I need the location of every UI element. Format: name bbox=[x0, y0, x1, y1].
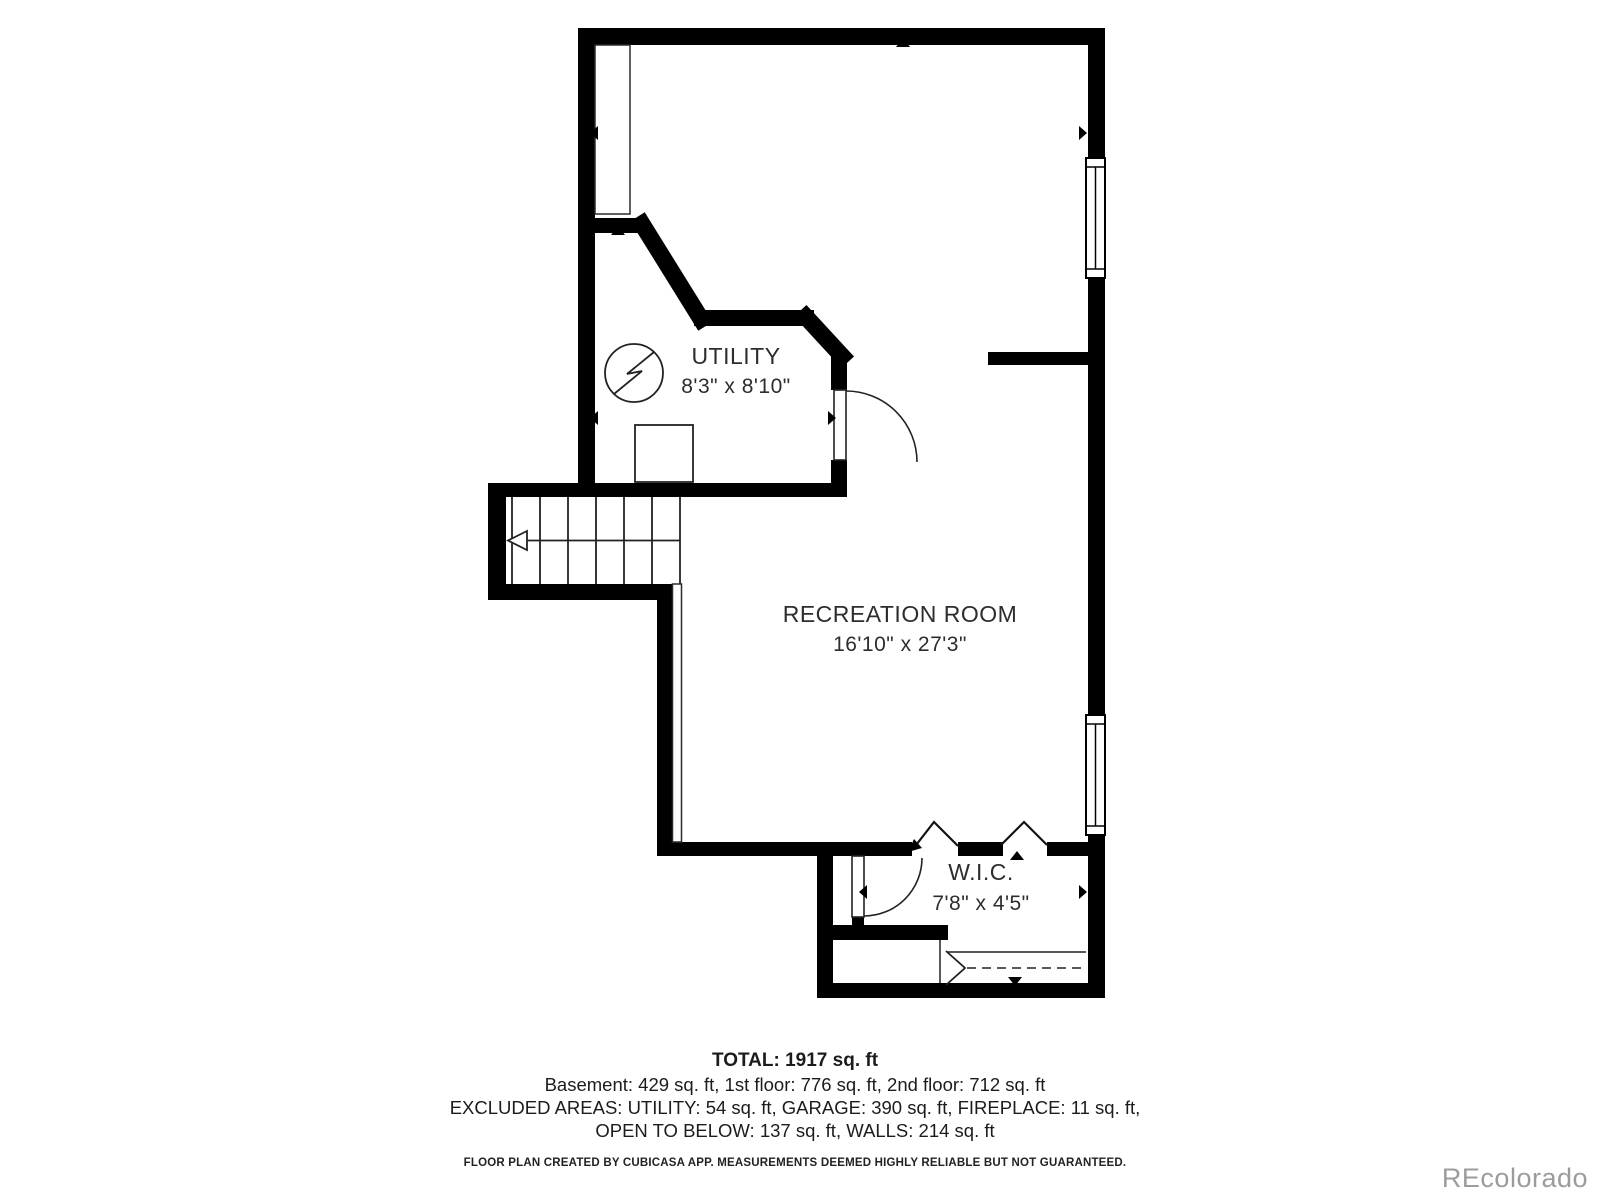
wall-right-upper bbox=[1088, 28, 1105, 158]
duct-chase bbox=[595, 45, 630, 214]
floor-plan-canvas: UTILITY 8'3" x 8'10" RECREATION ROOM 16'… bbox=[0, 0, 1600, 1200]
door-swing-arc bbox=[846, 391, 917, 462]
wall-top bbox=[578, 28, 1105, 45]
interior-walls bbox=[578, 218, 1088, 940]
wall-rec-bottom bbox=[657, 842, 912, 856]
disclaimer-text: FLOOR PLAN CREATED BY CUBICASA APP. MEAS… bbox=[0, 1157, 1590, 1169]
overhead-arrow bbox=[946, 951, 965, 985]
wall-utility-right-upper bbox=[831, 349, 847, 390]
room-label-utility: UTILITY bbox=[691, 343, 780, 369]
wall-stairs-left bbox=[488, 483, 506, 600]
recolorado-watermark: REcolorado bbox=[1442, 1163, 1588, 1194]
wall-bottom bbox=[817, 983, 1105, 998]
stair-railing bbox=[673, 584, 682, 842]
room-dims-utility: 8'3" x 8'10" bbox=[681, 375, 791, 398]
wall-wic-divider bbox=[833, 925, 948, 940]
utility-door bbox=[834, 390, 917, 462]
wall-stairs-bottom bbox=[488, 584, 673, 600]
furnace-icon bbox=[635, 425, 693, 482]
room-dims-recreation: 16'10" x 27'3" bbox=[833, 633, 967, 656]
wall-utility-diagonal-1 bbox=[642, 224, 701, 319]
wall-wic-left bbox=[817, 856, 833, 998]
wall-left-lower bbox=[657, 584, 673, 856]
window-lower bbox=[1086, 715, 1105, 835]
excluded-areas-text-1: EXCLUDED AREAS: UTILITY: 54 sq. ft, GARA… bbox=[0, 1096, 1590, 1119]
wall-marker bbox=[1079, 885, 1087, 899]
exterior-walls bbox=[488, 28, 1105, 998]
room-labels: UTILITY 8'3" x 8'10" RECREATION ROOM 16'… bbox=[681, 343, 1029, 915]
wall-marker bbox=[1079, 126, 1087, 140]
wall-wic-pier bbox=[958, 842, 1003, 856]
room-dims-wic: 7'8" x 4'5" bbox=[932, 892, 1029, 915]
door-swing-arc bbox=[864, 858, 922, 916]
door-leaf bbox=[852, 856, 864, 917]
opening-chevron bbox=[1001, 822, 1047, 845]
wall-left-upper bbox=[578, 28, 595, 497]
excluded-areas-text-2: OPEN TO BELOW: 137 sq. ft, WALLS: 214 sq… bbox=[0, 1119, 1590, 1142]
total-area-text: TOTAL: 1917 sq. ft bbox=[0, 1049, 1590, 1072]
floor-areas-text: Basement: 429 sq. ft, 1st floor: 776 sq.… bbox=[0, 1073, 1590, 1096]
floor-plan-page: UTILITY 8'3" x 8'10" RECREATION ROOM 16'… bbox=[0, 0, 1600, 1200]
water-heater-icon bbox=[605, 344, 663, 402]
wall-stairs-top bbox=[488, 483, 847, 497]
wall-utility-right-lower bbox=[831, 460, 847, 497]
window-upper bbox=[1086, 158, 1105, 278]
wic-door bbox=[852, 856, 922, 917]
door-leaf bbox=[834, 390, 846, 460]
opening-chevron bbox=[913, 822, 958, 849]
wall-right-middle bbox=[1088, 278, 1105, 717]
stairs-arrow-head bbox=[508, 531, 527, 550]
wic-door-jamb bbox=[852, 917, 864, 928]
room-label-recreation: RECREATION ROOM bbox=[783, 601, 1018, 627]
wall-right-lower bbox=[1088, 833, 1105, 998]
wall-wic-right-segment bbox=[1047, 842, 1088, 856]
room-label-wic: W.I.C. bbox=[948, 859, 1014, 885]
wall-stub-right bbox=[988, 352, 1088, 365]
stairs bbox=[508, 497, 680, 584]
